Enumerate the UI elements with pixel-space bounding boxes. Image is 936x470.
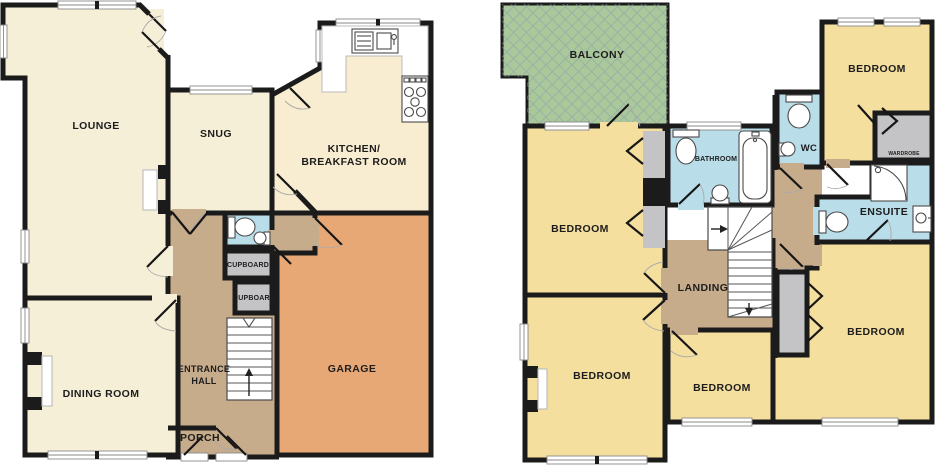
room-label-balcony: BALCONY [570, 49, 625, 61]
chimney-top-left [643, 178, 665, 206]
ensuite-toilet-icon [819, 211, 848, 233]
room-label-snug: SNUG [200, 128, 232, 140]
room-label-dining: DINING ROOM [63, 388, 140, 400]
wardrobe-bottom-right [777, 272, 807, 355]
room-label-garage: GARAGE [328, 363, 377, 375]
ground-floor-plan: LOUNGE SNUG KITCHEN/ BREAKFAST ROOM DINI… [0, 1, 431, 461]
room-snug [168, 90, 272, 213]
room-label-cupboard-bottom: CUPBOARD [233, 295, 275, 302]
wc-first-sink-icon [779, 142, 795, 156]
wardrobe-top-left-2 [643, 206, 665, 248]
room-label-hall-line1: ENTRANCE [178, 364, 230, 374]
floorplan-canvas: LOUNGE SNUG KITCHEN/ BREAKFAST ROOM DINI… [0, 0, 936, 470]
room-label-kitchen-line1: KITCHEN/ [328, 143, 381, 155]
wc-first-toilet-icon [786, 95, 812, 128]
wc-ground-toilet-icon [228, 217, 255, 238]
bathroom-sink-icon [711, 185, 729, 204]
wardrobe-top-left-1 [643, 131, 665, 178]
room-label-porch: PORCH [180, 432, 220, 444]
room-label-lounge: LOUNGE [72, 120, 119, 132]
room-label-cupboard-top: CUPBOARD [227, 262, 269, 269]
room-label-hall-line2: HALL [191, 376, 216, 386]
kitchen-sink-icon [352, 29, 398, 53]
bathtub-icon [739, 131, 771, 203]
room-label-ensuite: ENSUITE [860, 206, 908, 218]
ensuite-sink-icon [913, 206, 931, 232]
shower-icon [871, 165, 907, 201]
room-label-bedroom-bottom-right: BEDROOM [847, 326, 905, 338]
room-label-bedroom-top-right: BEDROOM [848, 63, 906, 75]
room-label-kitchen-line2: BREAKFAST ROOM [301, 156, 406, 168]
floorplan-page: LOUNGE SNUG KITCHEN/ BREAKFAST ROOM DINI… [0, 0, 936, 470]
room-label-landing: LANDING [678, 282, 729, 294]
room-label-wardrobe: WARDROBE [888, 151, 920, 157]
room-label-bathroom: BATHROOM [695, 156, 737, 163]
room-label-bedroom-top-left: BEDROOM [551, 223, 609, 235]
wc-ground-sink-icon [254, 232, 270, 245]
room-label-bedroom-bottom-middle: BEDROOM [693, 382, 751, 394]
kitchen-hob-icon [402, 76, 428, 122]
stairs-ground [227, 318, 272, 400]
room-label-bedroom-bottom-left: BEDROOM [573, 370, 631, 382]
room-label-wc: WC [801, 143, 817, 154]
first-floor-plan: BALCONY BEDROOM BEDROOM BATHROOM WC WARD… [502, 4, 932, 464]
